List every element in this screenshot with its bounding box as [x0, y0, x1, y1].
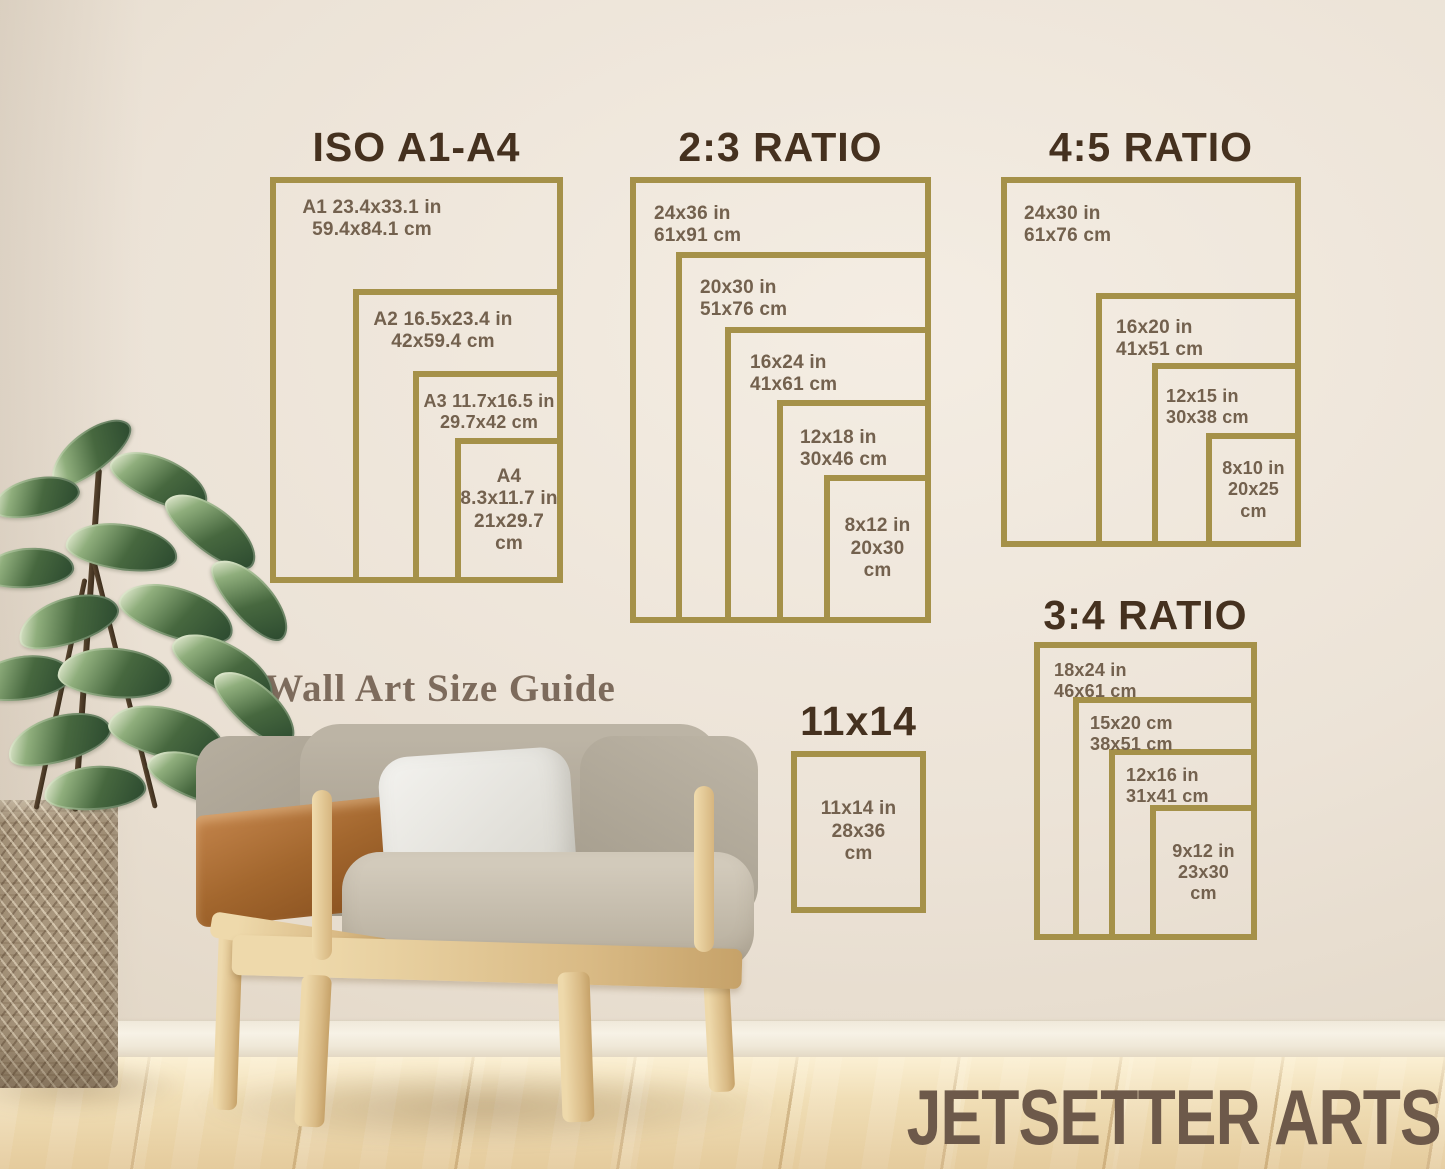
ratio45-label-24x30: 24x30 in 61x76 cm	[1024, 203, 1111, 248]
ratio45-label-8x10: 8x10 in 20x25 cm	[1222, 458, 1284, 522]
brand-watermark: JETSETTER ARTS	[907, 1072, 1441, 1163]
size1114-frame: 11x14 in 28x36 cm	[791, 751, 926, 913]
ratio45-frame-8x10: 8x10 in 20x25 cm	[1206, 433, 1301, 547]
ratio34-label-15x20: 15x20 cm 38x51 cm	[1090, 713, 1173, 755]
ratio45-label-12x15: 12x15 in 30x38 cm	[1166, 386, 1249, 428]
size1114-group-title: 11x14	[791, 698, 926, 745]
ratio23-frame-8x12: 8x12 in 20x30 cm	[824, 475, 931, 623]
ratio23-label-8x12: 8x12 in 20x30 cm	[845, 515, 911, 582]
chair-floor-shadow	[190, 1066, 780, 1146]
iso-frame-a4: A4 8.3x11.7 in 21x29.7 cm	[455, 438, 563, 583]
chair-armrest-post-right	[694, 786, 714, 952]
ratio23-label-16x24: 16x24 in 41x61 cm	[750, 352, 837, 397]
ratio23-label-20x30: 20x30 in 51x76 cm	[700, 277, 787, 322]
iso-group-title: ISO A1-A4	[270, 124, 563, 171]
iso-label-a3: A3 11.7x16.5 in 29.7x42 cm	[419, 391, 559, 433]
iso-label-a2: A2 16.5x23.4 in 42x59.4 cm	[368, 309, 518, 354]
ratio23-label-12x18: 12x18 in 30x46 cm	[800, 427, 887, 472]
ratio45-group-title: 4:5 RATIO	[1001, 124, 1301, 171]
plant-basket	[0, 800, 118, 1088]
ratio34-label-18x24: 18x24 in 46x61 cm	[1054, 660, 1137, 702]
chair-front-leg-right	[557, 971, 594, 1122]
room-scene: ISO A1-A4 A4 8.3x11.7 in 21x29.7 cm A1 2…	[0, 0, 1445, 1169]
ratio23-group-title: 2:3 RATIO	[630, 124, 931, 171]
iso-label-a4: A4 8.3x11.7 in 21x29.7 cm	[460, 466, 557, 556]
size1114-label: 11x14 in 28x36 cm	[821, 798, 897, 865]
ratio23-label-24x36: 24x36 in 61x91 cm	[654, 203, 741, 248]
wall-caption: Wall Art Size Guide	[225, 666, 655, 711]
ratio34-frame-9x12: 9x12 in 23x30 cm	[1150, 805, 1257, 940]
ratio34-group-title: 3:4 RATIO	[1034, 592, 1257, 639]
chair-armrest-post-left	[312, 790, 332, 960]
ratio45-label-16x20: 16x20 in 41x51 cm	[1116, 317, 1203, 362]
iso-label-a1: A1 23.4x33.1 in 59.4x84.1 cm	[292, 197, 452, 242]
ratio34-label-12x16: 12x16 in 31x41 cm	[1126, 765, 1209, 807]
ratio34-label-9x12: 9x12 in 23x30 cm	[1172, 841, 1234, 905]
